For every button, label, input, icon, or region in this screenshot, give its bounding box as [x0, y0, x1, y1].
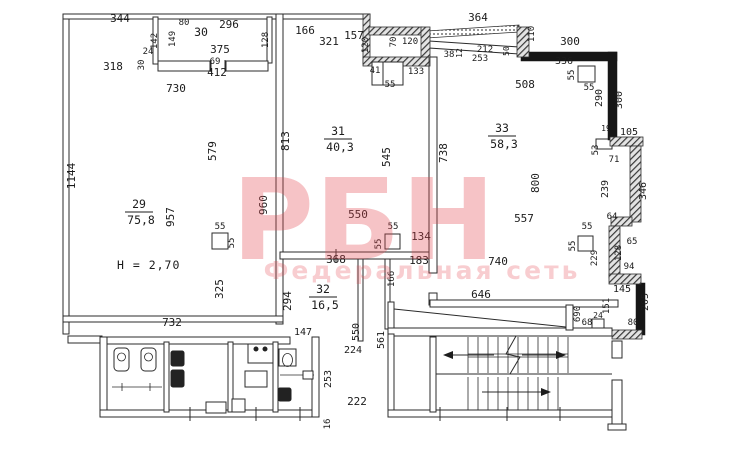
- dimension-label: 50: [502, 46, 511, 56]
- dimension-label: 120: [361, 37, 371, 53]
- dimension-label: 800: [529, 173, 542, 193]
- dimension-label: 321: [319, 35, 339, 48]
- dimension-label: 730: [166, 82, 186, 95]
- ramp: [394, 309, 566, 327]
- dimension-label: 957: [164, 207, 177, 227]
- dimension-label: 80: [628, 318, 639, 328]
- door-stub: [592, 319, 604, 328]
- wall: [388, 328, 612, 336]
- wall: [63, 14, 370, 19]
- dimension-label: 38: [444, 50, 455, 60]
- wall-hatched: [369, 27, 422, 35]
- room-area-label: 58,3: [490, 137, 518, 151]
- wall: [388, 410, 616, 417]
- dimension-label: 145: [613, 284, 631, 295]
- dimension-label: 151: [602, 298, 612, 314]
- wall: [566, 305, 573, 330]
- dimension-label: 24: [593, 311, 603, 320]
- wall-hatched: [609, 274, 641, 284]
- dimension-label: 68: [582, 318, 593, 328]
- stair-arrow-head: [443, 351, 453, 359]
- dimension-label: 71: [609, 155, 620, 165]
- washbasin-icon: [248, 344, 273, 363]
- dimension-label: 732: [162, 316, 182, 329]
- floor-plan-canvas: 3443187301144142243080149296375694121285…: [0, 0, 750, 450]
- dimension-label: 19: [601, 124, 611, 133]
- partition-wall: [273, 342, 278, 412]
- floor-plan-page: 3443187301144142243080149296375694121285…: [0, 0, 750, 450]
- dimension-label: 53: [591, 145, 601, 156]
- wall-hatched: [610, 137, 643, 146]
- dimension-label: 70: [389, 37, 399, 48]
- dimension-label: 55: [568, 241, 578, 252]
- dimension-label: 813: [279, 131, 292, 151]
- dimension-label: 508: [515, 78, 535, 91]
- wall: [388, 334, 394, 417]
- dimension-label: 318: [103, 60, 123, 73]
- dimension-label: 30: [137, 60, 147, 71]
- room-number-label: 31: [331, 124, 345, 138]
- dimension-label: 579: [206, 141, 219, 161]
- dimension-label: 412: [207, 66, 227, 79]
- dimension-label: 55: [584, 83, 595, 93]
- watermark-subtitle: Федеральная сеть: [264, 256, 581, 285]
- room-number-label: 33: [495, 121, 509, 135]
- wall: [430, 337, 436, 412]
- column: [212, 233, 228, 249]
- wall: [612, 341, 622, 358]
- tap-icon: [254, 347, 258, 351]
- sink-icon: [171, 370, 184, 387]
- stair-arrow-head: [541, 388, 551, 396]
- sink-icon: [278, 388, 291, 401]
- shower-tray-icon: [245, 371, 267, 387]
- wall: [430, 300, 618, 307]
- wall: [100, 337, 290, 344]
- dimension-label: 296: [219, 18, 239, 31]
- counter-wall: [226, 61, 268, 71]
- vent-shaft: [578, 66, 595, 82]
- dimension-label: 12: [455, 48, 464, 58]
- dimension-label: 41: [370, 66, 381, 76]
- wall: [68, 336, 102, 343]
- dimension-label: 325: [213, 279, 226, 299]
- sink-icon: [171, 351, 184, 366]
- cabinet-icon: [206, 402, 226, 413]
- dimension-label: 128: [614, 245, 624, 261]
- room-number-label: 29: [132, 197, 146, 211]
- dimension-label: 149: [168, 31, 178, 47]
- dimension-label: 16: [323, 419, 333, 430]
- stairs: [436, 336, 612, 410]
- dimension-label: 239: [600, 180, 611, 198]
- wall: [100, 337, 107, 417]
- dimension-label: 110: [527, 26, 537, 42]
- dimension-label: 55: [582, 222, 593, 232]
- toilet-icon: [114, 348, 129, 371]
- dimension-label: 375: [210, 43, 230, 56]
- insulated-wall: [427, 25, 519, 38]
- counter-wall: [158, 61, 210, 71]
- dimension-label: 205: [640, 293, 651, 311]
- ramp-slope-line: [394, 309, 566, 327]
- dimension-label: 55: [385, 80, 396, 90]
- dimension-label: 128: [261, 32, 271, 48]
- dimension-label: 55: [567, 70, 577, 81]
- dimension-label: 550: [351, 323, 362, 341]
- stair-arrow-head: [556, 351, 566, 359]
- vent-shaft: [578, 236, 593, 251]
- wall: [612, 380, 622, 426]
- dimension-label: 55: [215, 222, 226, 232]
- dimension-label: 24: [143, 47, 154, 57]
- dimension-label: 344: [110, 12, 130, 25]
- toilet-icon: [279, 349, 296, 366]
- dimension-label: 120: [402, 37, 418, 47]
- cabinet-icon: [232, 399, 245, 412]
- dimension-label: 253: [323, 370, 334, 388]
- dimension-label: 94: [624, 262, 635, 272]
- dimension-label: 346: [638, 182, 649, 200]
- partition-wall: [164, 342, 169, 412]
- tap-icon: [263, 347, 267, 351]
- dimension-label: 290: [594, 89, 605, 107]
- dimension-label: 64: [607, 212, 618, 222]
- dimension-label: 1144: [65, 162, 78, 189]
- wall: [608, 424, 626, 430]
- room-area-label: 16,5: [311, 298, 339, 312]
- dimension-label: 253: [472, 54, 488, 64]
- dimension-label: 166: [295, 24, 315, 37]
- room-area-label: 40,3: [326, 140, 354, 154]
- dimension-label: 65: [627, 237, 638, 247]
- room-number-label: 30: [194, 25, 208, 39]
- grab-bar-icon: [303, 371, 313, 379]
- dimension-label: 294: [281, 291, 294, 311]
- toilet-icon: [141, 348, 156, 371]
- dimension-label: 300: [614, 91, 625, 109]
- dimension-label: 224: [344, 345, 362, 356]
- room-area-label: 75,8: [127, 213, 155, 227]
- ceiling-height-note: H = 2,70: [117, 258, 180, 272]
- dimension-label: 222: [347, 395, 367, 408]
- dimension-label: 229: [590, 250, 600, 266]
- fixtures-layer: [112, 344, 314, 413]
- dimension-label: 300: [560, 35, 580, 48]
- dimension-label: 80: [179, 18, 190, 28]
- wall-hatched: [612, 330, 642, 339]
- dimension-label: 336: [555, 56, 573, 67]
- dimension-label: 364: [468, 11, 488, 24]
- dimension-label: 557: [514, 212, 534, 225]
- dimension-label: 133: [408, 67, 424, 77]
- dimension-label: 561: [376, 331, 387, 349]
- wall: [388, 302, 394, 330]
- dimension-label: 147: [294, 327, 312, 338]
- dimension-label: 646: [471, 288, 491, 301]
- dimension-label: 105: [620, 127, 638, 138]
